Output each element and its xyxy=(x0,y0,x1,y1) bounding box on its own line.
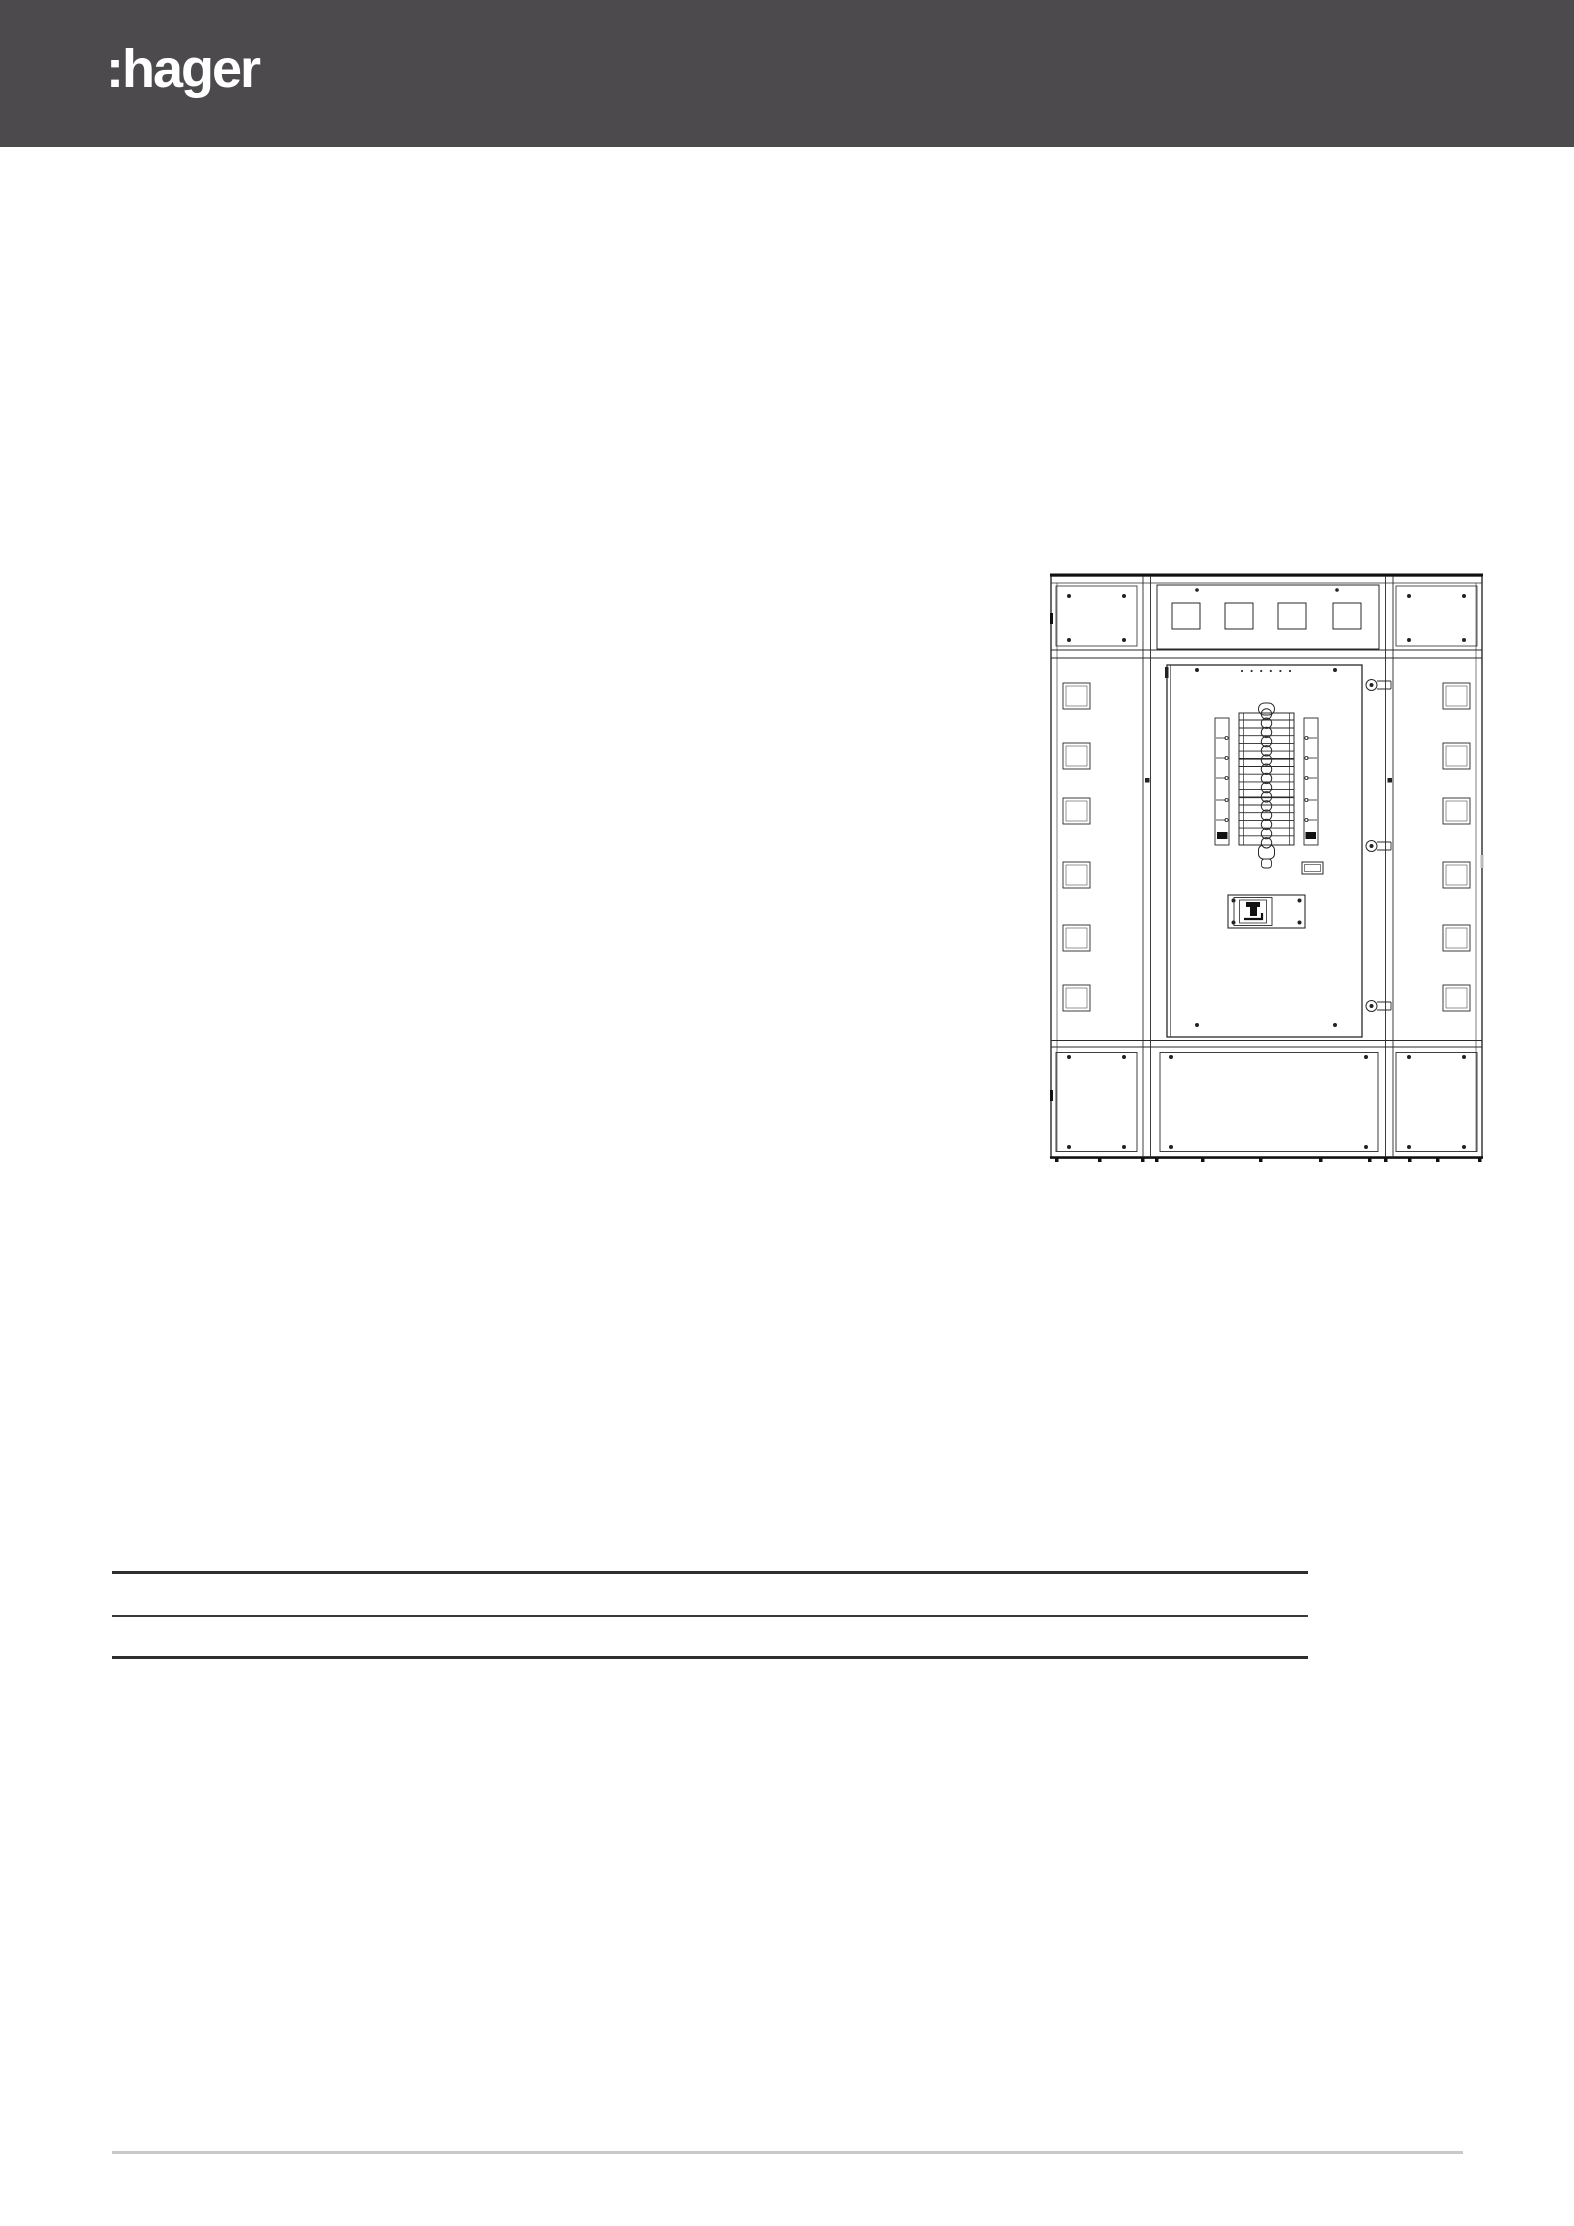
table-rule-top xyxy=(112,1571,1308,1574)
datasheet-page: :hager xyxy=(0,0,1574,2226)
header-bar: :hager xyxy=(0,0,1574,147)
table-rule-middle xyxy=(112,1615,1308,1617)
hager-logo: :hager xyxy=(106,42,259,96)
table-rule-bottom xyxy=(112,1656,1308,1659)
switchboard-front-view-drawing xyxy=(1050,573,1484,1163)
footer-divider xyxy=(112,2151,1463,2154)
switchboard-front-view-icon xyxy=(1050,573,1484,1163)
